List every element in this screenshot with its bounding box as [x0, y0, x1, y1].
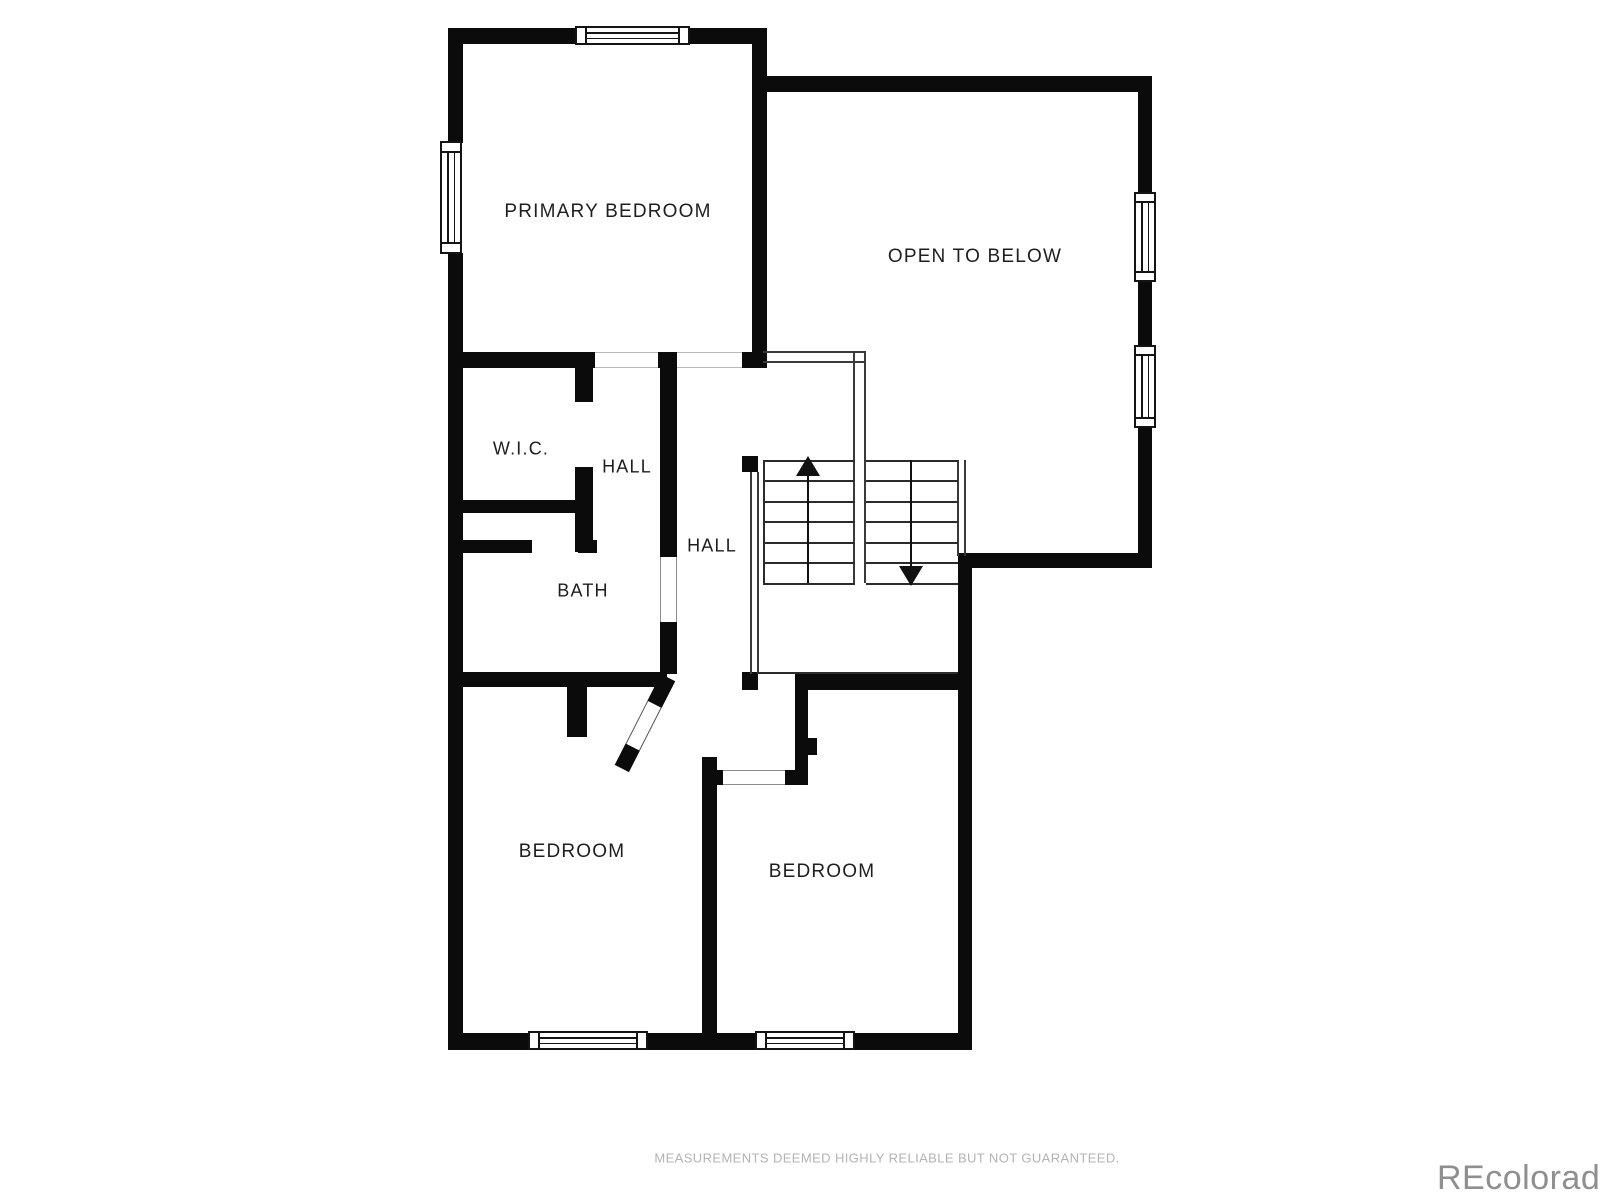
stair-railing: [864, 351, 866, 583]
wall: [648, 1033, 755, 1050]
stair-railing: [763, 361, 866, 363]
stair-tread: [866, 562, 958, 564]
door-opening: [723, 770, 785, 785]
measurements-disclaimer: MEASUREMENTS DEEMED HIGHLY RELIABLE BUT …: [654, 1151, 1119, 1166]
stair-railing: [964, 460, 966, 556]
wall: [1138, 428, 1152, 568]
wall: [448, 500, 583, 513]
wall: [567, 687, 587, 737]
door-opening: [626, 701, 662, 751]
room-label-open-to-below: OPEN TO BELOW: [888, 246, 1062, 268]
wall: [767, 76, 1152, 92]
wall: [742, 352, 767, 368]
stair-tread: [866, 501, 958, 503]
wall: [660, 540, 677, 553]
stair-tread: [866, 542, 958, 544]
stair-railing: [750, 472, 752, 674]
wall: [660, 622, 677, 674]
stair-tread: [866, 480, 958, 482]
wall: [448, 28, 575, 44]
landing-edge: [758, 672, 958, 674]
window: [755, 1031, 855, 1050]
room-label-bedroom-right: BEDROOM: [769, 861, 876, 883]
wall: [958, 553, 1152, 568]
wall: [742, 672, 758, 690]
stair-tread: [866, 521, 958, 523]
wall: [742, 456, 758, 472]
stairs-up-arrow-head: [796, 456, 820, 476]
wall: [575, 352, 593, 402]
wall: [855, 1033, 972, 1050]
wall: [462, 540, 532, 553]
stair-tread: [763, 521, 855, 523]
wall: [448, 28, 463, 143]
wall: [1138, 282, 1152, 345]
wall: [795, 672, 958, 690]
room-label-wic: W.I.C.: [493, 439, 549, 460]
floor-plan: PRIMARY BEDROOM OPEN TO BELOW W.I.C. HAL…: [0, 0, 1600, 1200]
door-opening: [660, 557, 677, 622]
stair-tread: [866, 460, 958, 462]
door-opening: [677, 352, 742, 368]
wall: [660, 352, 677, 557]
room-label-bedroom-left: BEDROOM: [519, 841, 626, 863]
wall: [958, 553, 972, 1050]
room-label-hall-upper: HALL: [602, 457, 652, 478]
window: [1134, 192, 1156, 282]
wall: [1138, 76, 1152, 192]
wall: [702, 757, 717, 1035]
stair-railing: [853, 351, 855, 583]
window: [1134, 345, 1156, 428]
room-label-hall-lower: HALL: [687, 536, 737, 557]
window: [575, 26, 690, 45]
door-opening: [595, 352, 658, 368]
stair-tread: [763, 583, 855, 585]
stair-tread: [763, 562, 855, 564]
recolorado-watermark: REcolorado: [1437, 1159, 1600, 1198]
room-label-primary-bedroom: PRIMARY BEDROOM: [504, 201, 711, 223]
wall: [448, 352, 595, 368]
stair-tread: [763, 501, 855, 503]
stairs-down-arrow-head: [899, 566, 923, 586]
wall: [752, 28, 767, 368]
stairs-up-arrow: [807, 474, 809, 583]
wall: [448, 253, 463, 1050]
wall: [448, 672, 667, 687]
stair-tread: [763, 480, 855, 482]
stair-railing: [757, 472, 759, 674]
wall: [578, 540, 597, 553]
wall: [448, 1033, 528, 1050]
diagonal-doorway: [615, 674, 676, 772]
stairs-down-arrow: [910, 460, 912, 568]
wall: [808, 738, 817, 755]
wall: [785, 770, 808, 785]
window: [528, 1031, 648, 1050]
room-label-bath: BATH: [557, 581, 608, 602]
stair-railing: [763, 351, 866, 353]
window: [440, 141, 462, 254]
stair-tread: [763, 542, 855, 544]
